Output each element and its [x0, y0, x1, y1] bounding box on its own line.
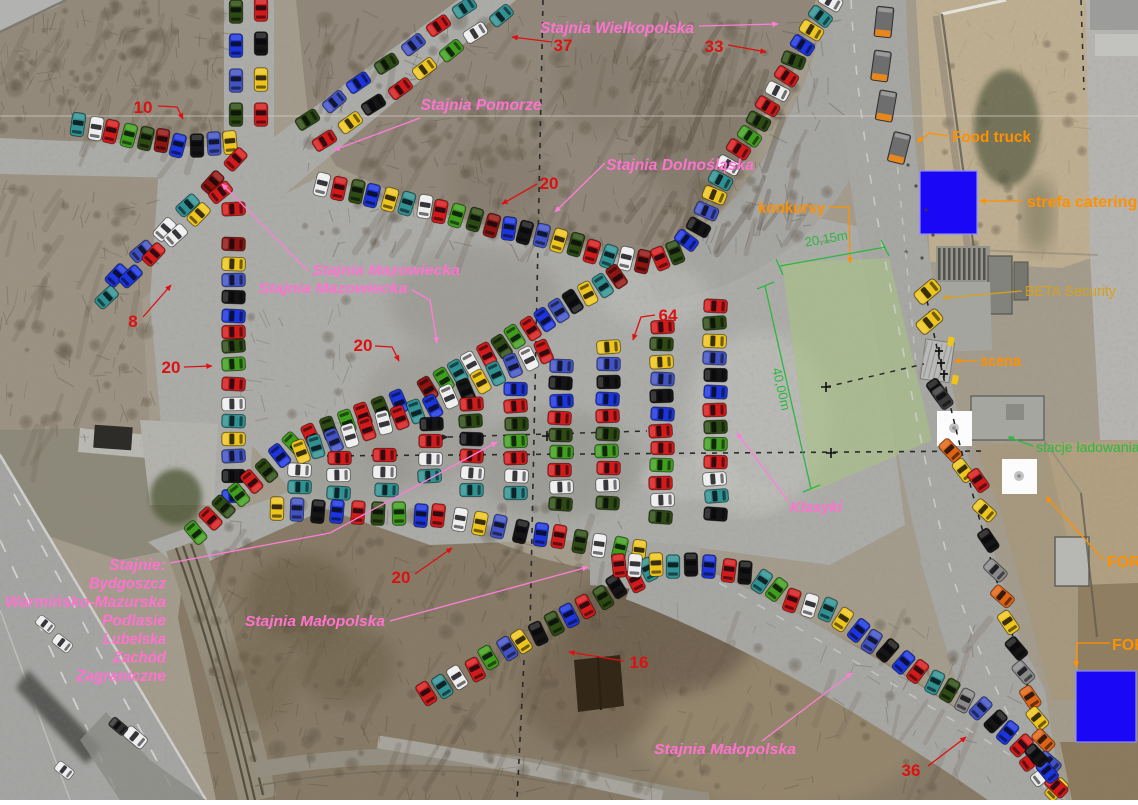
svg-text:stacje ładowania: stacje ładowania — [1036, 439, 1138, 455]
svg-text:strefa cateringowa: strefa cateringowa — [1027, 194, 1138, 211]
svg-text:20: 20 — [354, 336, 373, 355]
svg-text:37: 37 — [554, 36, 573, 55]
svg-text:10: 10 — [134, 98, 153, 117]
svg-text:Stajnia Mazowiecka: Stajnia Mazowiecka — [259, 280, 408, 297]
svg-text:20: 20 — [162, 358, 181, 377]
svg-text:Stajnie:: Stajnie: — [109, 557, 166, 574]
svg-text:Podlasie: Podlasie — [102, 613, 166, 630]
svg-text:konkursy: konkursy — [758, 200, 825, 217]
svg-text:BETA Security: BETA Security — [1025, 283, 1116, 300]
svg-text:FORD: FORD — [1112, 637, 1138, 654]
svg-text:64: 64 — [659, 306, 678, 325]
svg-text:Klasyki: Klasyki — [790, 499, 843, 516]
svg-text:Stajnia Wielkopolska: Stajnia Wielkopolska — [540, 20, 694, 37]
svg-text:8: 8 — [128, 312, 137, 331]
svg-text:36: 36 — [902, 761, 921, 780]
svg-text:scena: scena — [980, 353, 1021, 370]
svg-text:Bydgoszcz: Bydgoszcz — [89, 576, 166, 593]
svg-text:20: 20 — [392, 568, 411, 587]
svg-text:Zachód: Zachód — [112, 650, 166, 667]
svg-text:Lubelska: Lubelska — [103, 631, 166, 648]
svg-text:Food truck: Food truck — [952, 129, 1031, 146]
svg-text:Zagraniczne: Zagraniczne — [75, 668, 166, 685]
svg-text:16: 16 — [630, 653, 649, 672]
svg-text:Stajnia Mazowiecka: Stajnia Mazowiecka — [312, 262, 460, 279]
svg-text:Stajnia Małopolska: Stajnia Małopolska — [654, 741, 796, 758]
svg-text:Stajnia Pomorze: Stajnia Pomorze — [421, 97, 542, 114]
svg-text:FORD: FORD — [1107, 554, 1138, 571]
svg-text:20: 20 — [540, 174, 559, 193]
svg-text:Stajnia Małopolska: Stajnia Małopolska — [245, 613, 385, 630]
svg-text:Stajnia Dolnośląska: Stajnia Dolnośląska — [606, 157, 754, 174]
svg-text:33: 33 — [705, 37, 724, 56]
svg-text:Warmińsko-Mazurska: Warmińsko-Mazurska — [5, 594, 166, 611]
